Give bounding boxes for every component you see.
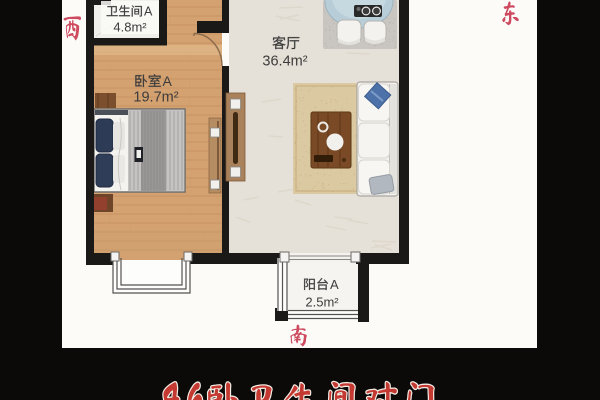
svg-text:2.5m²: 2.5m²: [305, 295, 339, 310]
svg-text:36.4m²: 36.4m²: [262, 54, 307, 70]
svg-text:A: A: [330, 277, 339, 292]
svg-text:4.8m²: 4.8m²: [113, 20, 147, 35]
svg-text:19.7m²: 19.7m²: [133, 90, 178, 106]
svg-text:A: A: [144, 5, 153, 19]
svg-text:A: A: [163, 73, 173, 89]
